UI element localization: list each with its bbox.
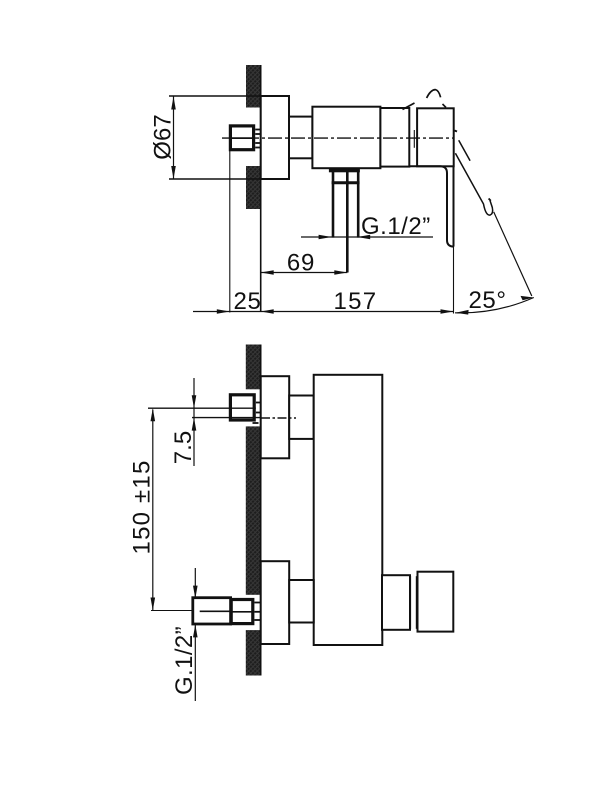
svg-text:7.5: 7.5 <box>170 431 197 464</box>
svg-text:25°: 25° <box>468 287 506 314</box>
svg-text:69: 69 <box>287 250 315 277</box>
svg-text:150 ±15: 150 ±15 <box>129 460 156 555</box>
svg-text:Ø67: Ø67 <box>150 114 177 159</box>
svg-text:157: 157 <box>334 288 378 315</box>
svg-text:G.1/2”: G.1/2” <box>171 626 198 695</box>
svg-text:G.1/2”: G.1/2” <box>361 213 431 240</box>
svg-text:25: 25 <box>234 288 262 315</box>
